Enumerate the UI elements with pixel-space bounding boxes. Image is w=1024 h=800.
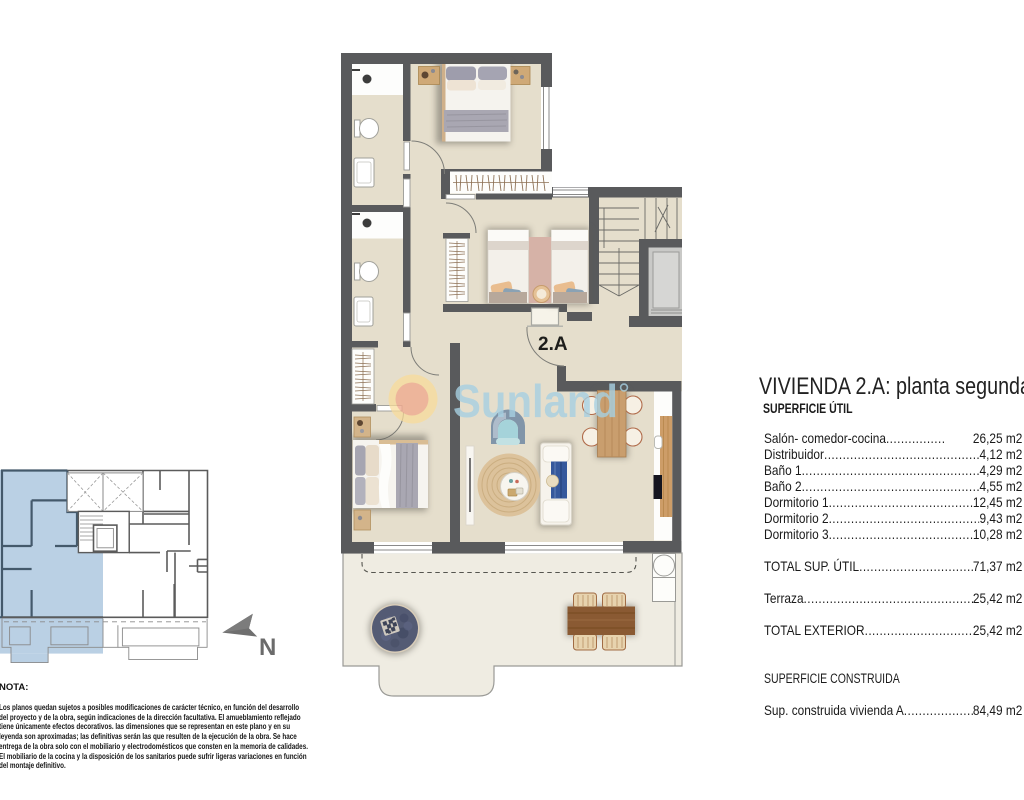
- svg-text:N: N: [259, 634, 276, 661]
- svg-text:2.A: 2.A: [538, 334, 568, 355]
- svg-text:Sunland: Sunland: [453, 375, 618, 427]
